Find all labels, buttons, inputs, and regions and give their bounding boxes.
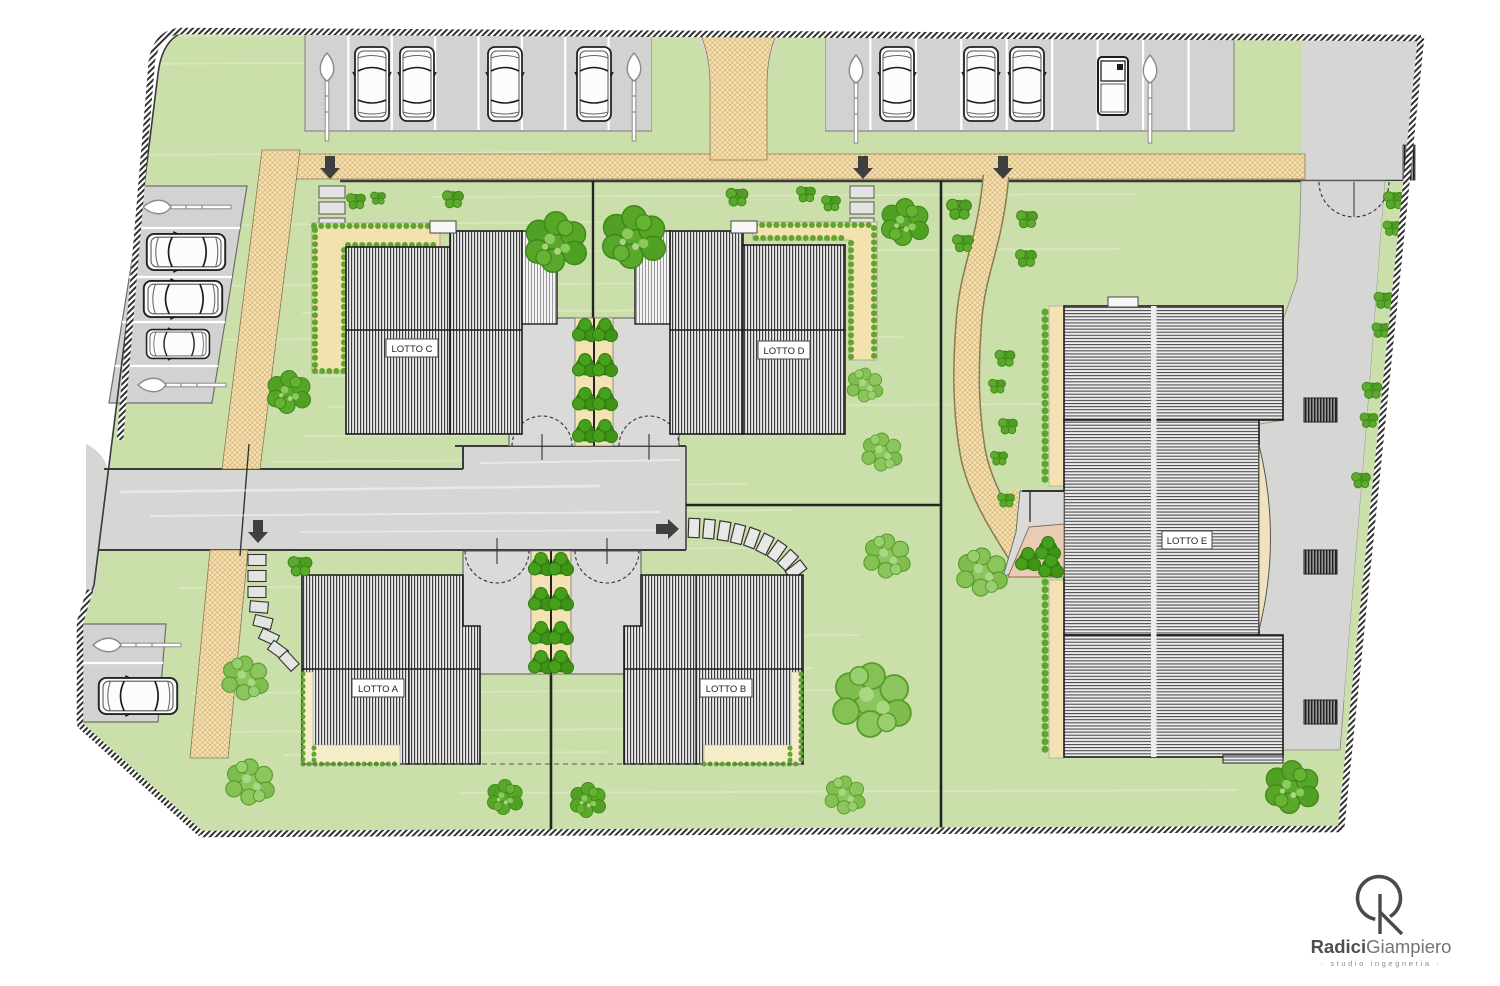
svg-text:RadiciGiampiero: RadiciGiampiero <box>1311 936 1452 957</box>
svg-text:· studio ingegneria ·: · studio ingegneria · <box>1321 959 1442 968</box>
svg-text:LOTTO E: LOTTO E <box>1167 536 1207 547</box>
svg-text:LOTTO D: LOTTO D <box>764 346 805 357</box>
svg-text:LOTTO C: LOTTO C <box>392 344 433 355</box>
svg-text:LOTTO B: LOTTO B <box>706 684 746 695</box>
svg-text:LOTTO A: LOTTO A <box>358 684 399 695</box>
